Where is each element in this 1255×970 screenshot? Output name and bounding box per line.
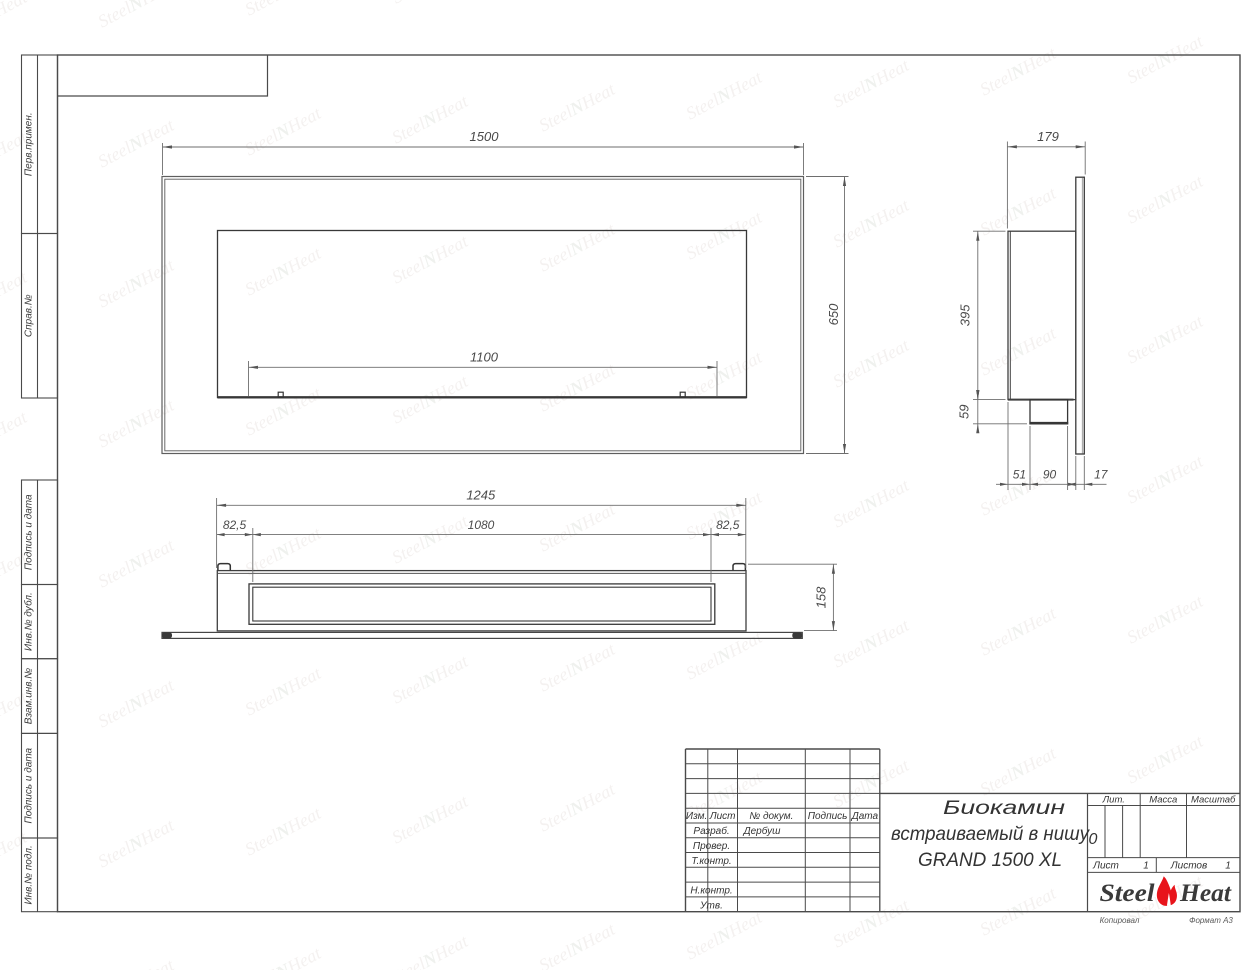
svg-text:Steel: Steel	[1100, 880, 1155, 907]
svg-text:Подпись и дата: Подпись и дата	[24, 494, 35, 570]
svg-text:№ докум.: № докум.	[749, 811, 793, 822]
svg-text:Справ.№: Справ.№	[24, 294, 35, 337]
svg-text:1245: 1245	[466, 488, 496, 503]
svg-text:Разраб.: Разраб.	[693, 825, 729, 837]
svg-text:Подпись и дата: Подпись и дата	[24, 747, 35, 823]
svg-text:Изм.: Изм.	[686, 811, 707, 822]
svg-text:Heat: Heat	[1179, 880, 1232, 907]
svg-text:82,5: 82,5	[223, 518, 247, 532]
svg-text:Биокамин: Биокамин	[943, 798, 1066, 819]
svg-text:0: 0	[1089, 831, 1098, 848]
svg-text:Инв.№ подл.: Инв.№ подл.	[24, 845, 35, 904]
svg-text:Взам.инв.№: Взам.инв.№	[24, 668, 35, 724]
svg-text:17: 17	[1094, 468, 1109, 482]
svg-text:650: 650	[826, 303, 841, 325]
svg-text:1100: 1100	[470, 350, 499, 365]
svg-text:Масса: Масса	[1149, 795, 1177, 806]
svg-text:Листов: Листов	[1170, 861, 1207, 872]
svg-text:Подпись: Подпись	[808, 811, 848, 822]
svg-text:1080: 1080	[468, 518, 495, 532]
svg-text:395: 395	[958, 304, 973, 326]
svg-text:1: 1	[1143, 861, 1149, 872]
svg-text:Перв.примен.: Перв.примен.	[24, 112, 35, 176]
svg-text:Лист: Лист	[1092, 861, 1119, 872]
svg-text:1500: 1500	[470, 129, 500, 144]
svg-text:GRAND 1500 XL: GRAND 1500 XL	[918, 850, 1062, 871]
svg-text:90: 90	[1043, 468, 1057, 482]
svg-text:Дербуш: Дербуш	[743, 825, 782, 837]
svg-text:1: 1	[1225, 861, 1231, 872]
svg-text:Инв.№ дубл.: Инв.№ дубл.	[23, 592, 35, 651]
svg-text:Провер.: Провер.	[693, 841, 730, 852]
svg-text:179: 179	[1037, 129, 1059, 144]
svg-text:Лист: Лист	[709, 811, 736, 822]
svg-text:82,5: 82,5	[716, 518, 740, 532]
svg-text:Копировал: Копировал	[1100, 916, 1140, 925]
svg-text:158: 158	[814, 586, 829, 608]
svg-text:51: 51	[1013, 468, 1026, 482]
svg-text:Утв.: Утв.	[699, 900, 723, 911]
svg-text:Дата: Дата	[851, 811, 879, 822]
svg-text:59: 59	[957, 405, 972, 419]
svg-text:Лит.: Лит.	[1102, 795, 1125, 806]
svg-text:Т.контр.: Т.контр.	[691, 856, 731, 867]
svg-text:Н.контр.: Н.контр.	[690, 886, 732, 897]
svg-text:Масштаб: Масштаб	[1191, 795, 1236, 806]
svg-text:Формат А3: Формат А3	[1189, 916, 1233, 925]
svg-text:встраиваемый в нишу: встраиваемый в нишу	[891, 824, 1090, 845]
